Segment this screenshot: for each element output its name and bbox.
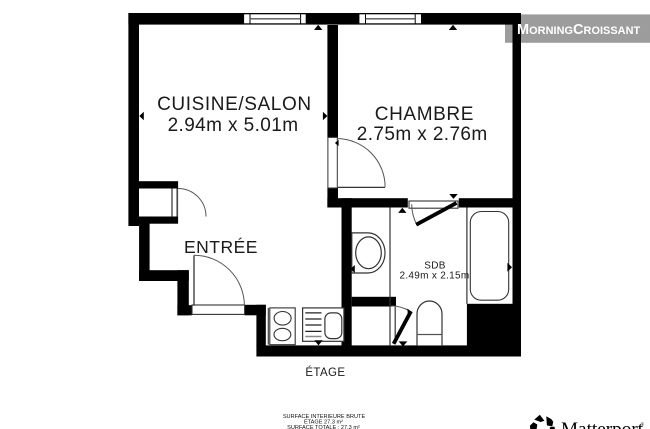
svg-text:MORNINGCROISSANT: MORNINGCROISSANT <box>517 22 641 38</box>
svg-text:2.75m x 2.76m: 2.75m x 2.76m <box>357 124 488 145</box>
svg-text:CHAMBRE: CHAMBRE <box>375 104 474 125</box>
svg-text:CUISINE/SALON: CUISINE/SALON <box>157 94 312 115</box>
svg-text:2.94m x 5.01m: 2.94m x 5.01m <box>168 115 299 136</box>
svg-text:ÉTAGE: ÉTAGE <box>305 366 345 379</box>
svg-text:2.49m x 2.15m: 2.49m x 2.15m <box>399 270 469 281</box>
svg-text:SURFACE TOTALE : 27.3 m²: SURFACE TOTALE : 27.3 m² <box>287 425 360 429</box>
svg-text:Matterport: Matterport <box>561 419 644 429</box>
svg-text:®: ® <box>641 422 645 428</box>
svg-text:ENTRÉE: ENTRÉE <box>184 237 258 257</box>
